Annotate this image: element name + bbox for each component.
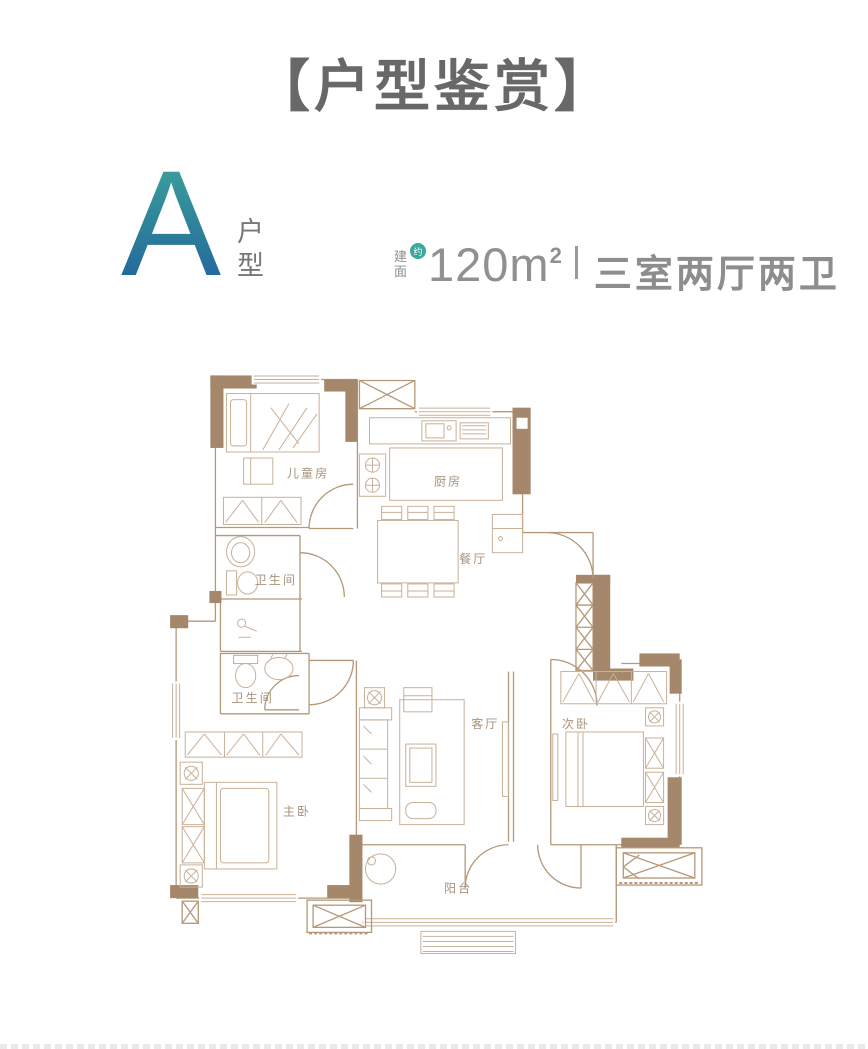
room-labels: 儿童房厨房餐厅卫生间卫生间客厅次卧主卧阳台 [232, 465, 591, 895]
doors [265, 484, 597, 888]
bathroom-upper [226, 537, 257, 595]
unit-type-char-1: 户 [237, 216, 264, 250]
spec-divider [575, 246, 578, 279]
room-label: 卫生间 [255, 573, 297, 587]
room-label: 儿童房 [287, 465, 329, 480]
walls-solid [170, 375, 682, 902]
floor-plan-svg: 儿童房厨房餐厅卫生间卫生间客厅次卧主卧阳台 [158, 350, 722, 982]
corner-box-bottom-left [182, 901, 198, 923]
dining-table [378, 506, 459, 597]
room-label: 厨房 [434, 473, 462, 488]
shower-room [238, 619, 257, 637]
room-label: 卫生间 [232, 691, 274, 705]
area-prefix: 建 面 [394, 250, 407, 280]
tv-cabinet [502, 722, 508, 797]
ac-ledge-right [616, 848, 702, 885]
room-label: 餐厅 [459, 551, 487, 566]
unit-type-label: 户 型 [237, 216, 264, 284]
room-label: 次卧 [562, 717, 590, 731]
entry-cabinet [492, 514, 522, 552]
balcony-washer [365, 854, 395, 884]
floor-plan: 儿童房厨房餐厅卫生间卫生间客厅次卧主卧阳台 [158, 350, 722, 982]
approx-badge: 约 [410, 243, 426, 259]
layout-spec: 三室两厅两卫 [594, 243, 840, 298]
kitchen-counter [370, 418, 511, 444]
area-superscript: 2 [550, 243, 563, 268]
childrens-bed [226, 394, 319, 452]
second-bedroom-tv-board [553, 734, 558, 800]
room-label: 主卧 [283, 805, 311, 819]
kitchen-stove [359, 454, 385, 496]
unit-type-char-2: 型 [237, 250, 264, 284]
page: 【户型鉴赏】 A 户 型 建 面 约 120m2 三室两厅两卫 [0, 0, 868, 1049]
unit-letter: A [121, 148, 221, 298]
bathroom-lower [234, 654, 293, 687]
coffee-table [406, 744, 436, 786]
childrens-desk [244, 458, 273, 484]
living-sofa [359, 688, 391, 821]
master-wardrobe [185, 732, 302, 757]
living-ottoman [406, 802, 436, 818]
page-title: 【户型鉴赏】 [0, 42, 868, 123]
room-label: 阳台 [444, 880, 472, 895]
area-value: 120m2 [428, 241, 563, 288]
specs-row: 建 面 约 120m2 三室两厅两卫 [394, 241, 840, 298]
ac-platform-master [307, 900, 371, 933]
master-bed [180, 762, 277, 887]
footer-cutoff-strip [0, 1044, 868, 1049]
balcony-deck [421, 931, 516, 953]
room-label: 客厅 [471, 716, 499, 731]
childrens-wardrobe [223, 497, 301, 524]
